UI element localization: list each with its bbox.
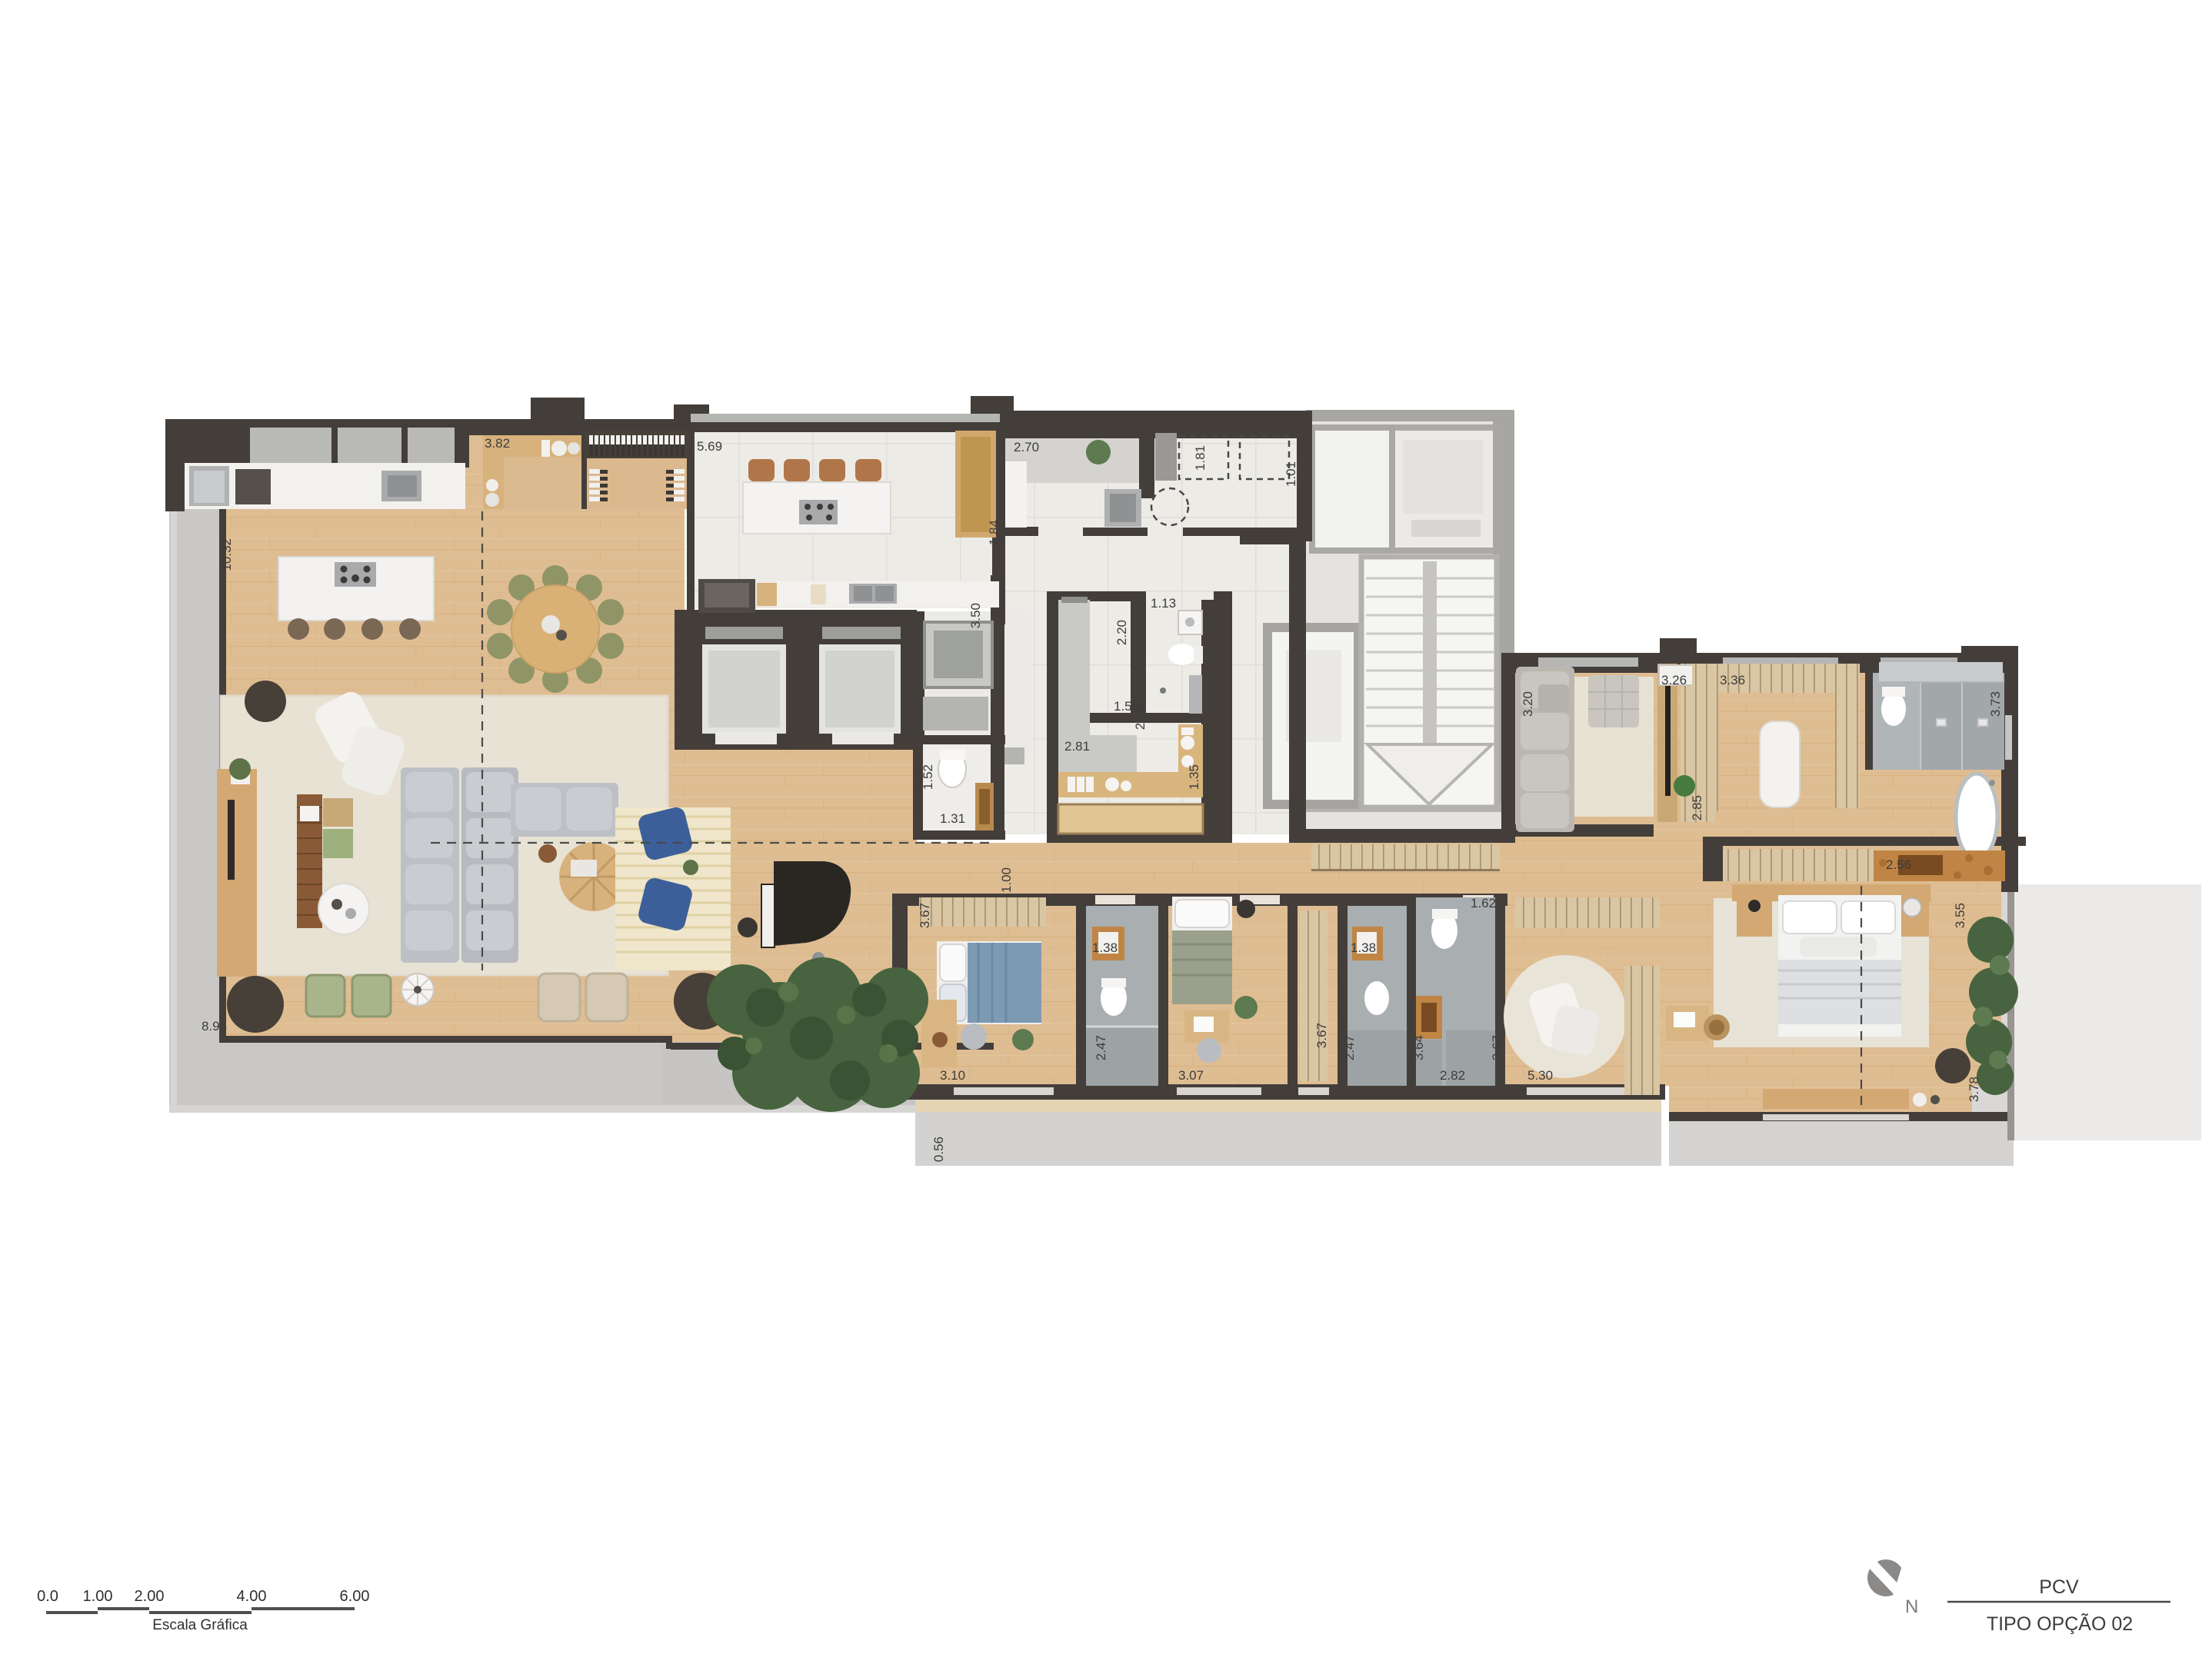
svg-text:3.20: 3.20 bbox=[1521, 691, 1535, 717]
svg-text:1.00: 1.00 bbox=[999, 867, 1014, 893]
svg-text:3.36: 3.36 bbox=[1720, 673, 1745, 687]
svg-text:2.18: 2.18 bbox=[1133, 704, 1148, 730]
svg-text:2.00: 2.00 bbox=[135, 1588, 165, 1605]
svg-text:1.62: 1.62 bbox=[1471, 896, 1496, 910]
svg-text:3.07: 3.07 bbox=[1178, 1068, 1204, 1083]
svg-text:2.70: 2.70 bbox=[1014, 440, 1039, 454]
svg-text:0.56: 0.56 bbox=[931, 1137, 946, 1162]
svg-text:1.81: 1.81 bbox=[1193, 445, 1208, 471]
svg-text:2.81: 2.81 bbox=[1064, 739, 1090, 754]
svg-text:3.67: 3.67 bbox=[918, 903, 932, 928]
svg-text:3.10: 3.10 bbox=[940, 1068, 965, 1083]
svg-text:5.69: 5.69 bbox=[697, 439, 722, 454]
svg-text:8.93: 8.93 bbox=[202, 1019, 227, 1034]
svg-text:3.67: 3.67 bbox=[1490, 1035, 1504, 1060]
svg-text:1.52: 1.52 bbox=[921, 764, 935, 790]
svg-text:1.84: 1.84 bbox=[987, 520, 1001, 545]
svg-text:2.47: 2.47 bbox=[1342, 1035, 1357, 1060]
svg-text:Escala Gráfica: Escala Gráfica bbox=[152, 1617, 248, 1633]
svg-text:TIPO OPÇÃO 02: TIPO OPÇÃO 02 bbox=[1987, 1613, 2133, 1635]
svg-text:1.13: 1.13 bbox=[1151, 596, 1176, 611]
svg-text:3.55: 3.55 bbox=[1953, 903, 1967, 928]
svg-text:2.20: 2.20 bbox=[1114, 620, 1129, 645]
svg-text:2.47: 2.47 bbox=[1094, 1035, 1108, 1060]
svg-text:1.38: 1.38 bbox=[1092, 940, 1118, 955]
svg-text:2.56: 2.56 bbox=[1886, 857, 1911, 872]
svg-text:1.31: 1.31 bbox=[940, 811, 965, 826]
svg-text:3.78: 3.78 bbox=[1967, 1077, 1981, 1102]
svg-text:1.00: 1.00 bbox=[83, 1588, 113, 1605]
svg-text:2.82: 2.82 bbox=[1440, 1068, 1465, 1083]
svg-text:0.0: 0.0 bbox=[37, 1588, 58, 1605]
svg-text:1.35: 1.35 bbox=[1187, 764, 1201, 790]
svg-text:10.32: 10.32 bbox=[219, 538, 234, 571]
svg-text:2.85: 2.85 bbox=[1690, 795, 1704, 821]
svg-text:3.26: 3.26 bbox=[1661, 673, 1687, 687]
svg-text:3.64: 3.64 bbox=[1411, 1035, 1426, 1060]
svg-text:1.38: 1.38 bbox=[1351, 940, 1376, 955]
svg-text:1.01: 1.01 bbox=[1284, 461, 1298, 487]
svg-text:6.00: 6.00 bbox=[340, 1588, 370, 1605]
svg-text:3.82: 3.82 bbox=[485, 436, 510, 451]
svg-text:N: N bbox=[1905, 1596, 1918, 1617]
svg-text:PCV: PCV bbox=[2039, 1576, 2079, 1598]
svg-text:3.50: 3.50 bbox=[968, 603, 983, 628]
svg-text:3.73: 3.73 bbox=[1988, 691, 2003, 717]
svg-text:5.30: 5.30 bbox=[1527, 1068, 1553, 1083]
svg-text:3.67: 3.67 bbox=[1314, 1023, 1329, 1048]
svg-text:4.00: 4.00 bbox=[237, 1588, 267, 1605]
